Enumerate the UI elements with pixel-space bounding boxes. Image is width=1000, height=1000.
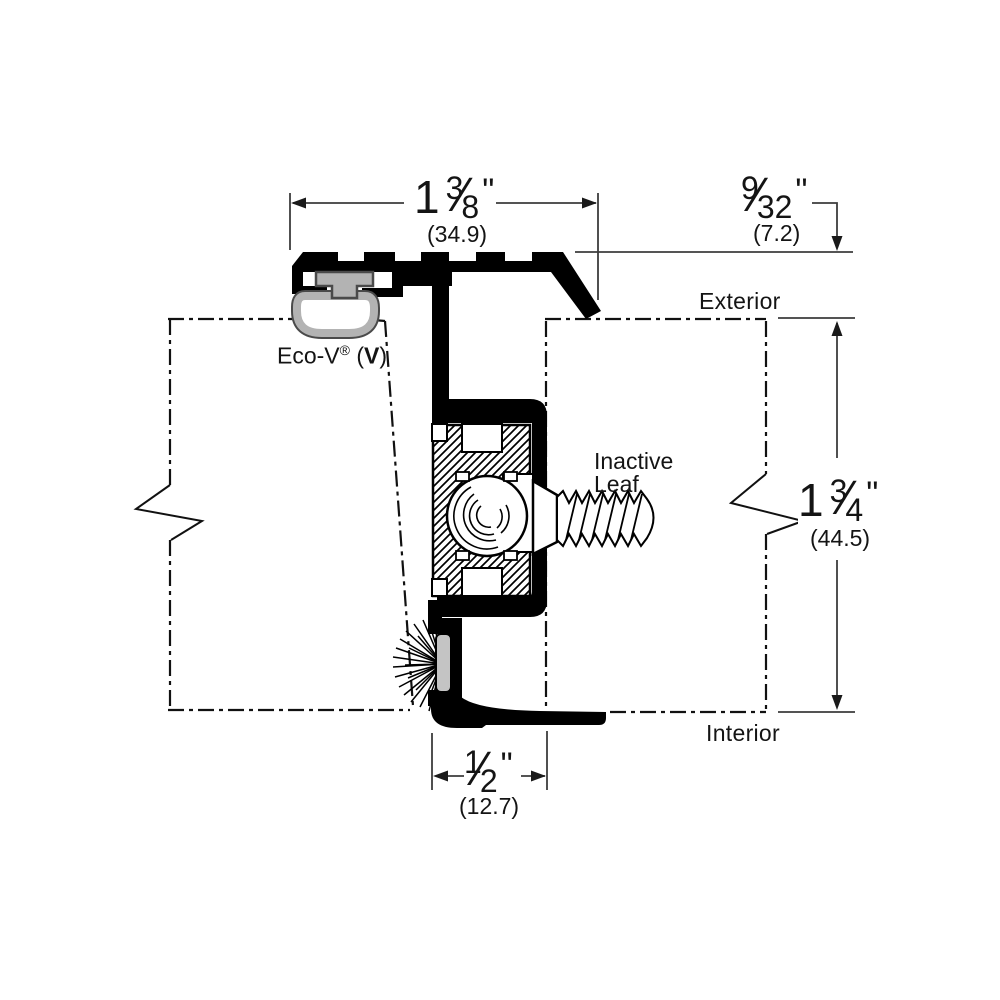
exterior-label: Exterior <box>699 288 781 315</box>
dim-denominator: 8 <box>461 193 479 221</box>
eco-v-seal <box>297 272 374 333</box>
dim-denominator: 4 <box>845 496 863 524</box>
dim-door-thickness: 1 3 ⁄ 4 " <box>798 479 878 524</box>
eco-v-letter: V <box>364 343 379 369</box>
inactive-leaf-label: Inactive Leaf <box>594 450 673 496</box>
dim-whole: 1 <box>798 479 824 521</box>
eco-v-open: ( <box>350 343 364 369</box>
eco-v-close: ) <box>379 343 387 369</box>
dim-bottom-width-metric: (12.7) <box>459 793 519 820</box>
dim-unit: " <box>482 176 494 206</box>
dim-denominator: 2 <box>480 767 498 795</box>
eco-v-name: Eco-V <box>277 343 340 369</box>
dim-unit: " <box>795 176 807 206</box>
interior-label: Interior <box>706 720 780 747</box>
inactive-leaf-line2: Leaf <box>594 473 673 496</box>
inactive-leaf-line1: Inactive <box>594 450 673 473</box>
dim-top-width-metric: (34.9) <box>427 221 487 248</box>
brush-seal <box>393 617 462 711</box>
dim-top-width: 1 3 ⁄ 8 " <box>414 176 494 221</box>
dim-unit: " <box>866 479 878 509</box>
dim-whole: 1 <box>414 176 440 218</box>
dim-unit: " <box>501 750 513 780</box>
active-leaf-outline <box>168 319 413 710</box>
dim-reveal-height: 9 ⁄ 32 " <box>741 176 807 221</box>
astragal-cross-section-page: 1 3 ⁄ 8 " (34.9) 9 ⁄ 32 " (7.2) Exterior… <box>0 0 1000 1000</box>
dim-denominator: 32 <box>757 193 793 221</box>
dim-door-thickness-metric: (44.5) <box>810 525 870 552</box>
eco-v-label: Eco-V® (V) <box>277 342 387 370</box>
dim-reveal-height-metric: (7.2) <box>753 220 800 247</box>
bottom-profile <box>431 697 606 728</box>
dim-bottom-width: 1 ⁄ 2 " <box>464 750 513 795</box>
registered-mark: ® <box>340 342 350 358</box>
